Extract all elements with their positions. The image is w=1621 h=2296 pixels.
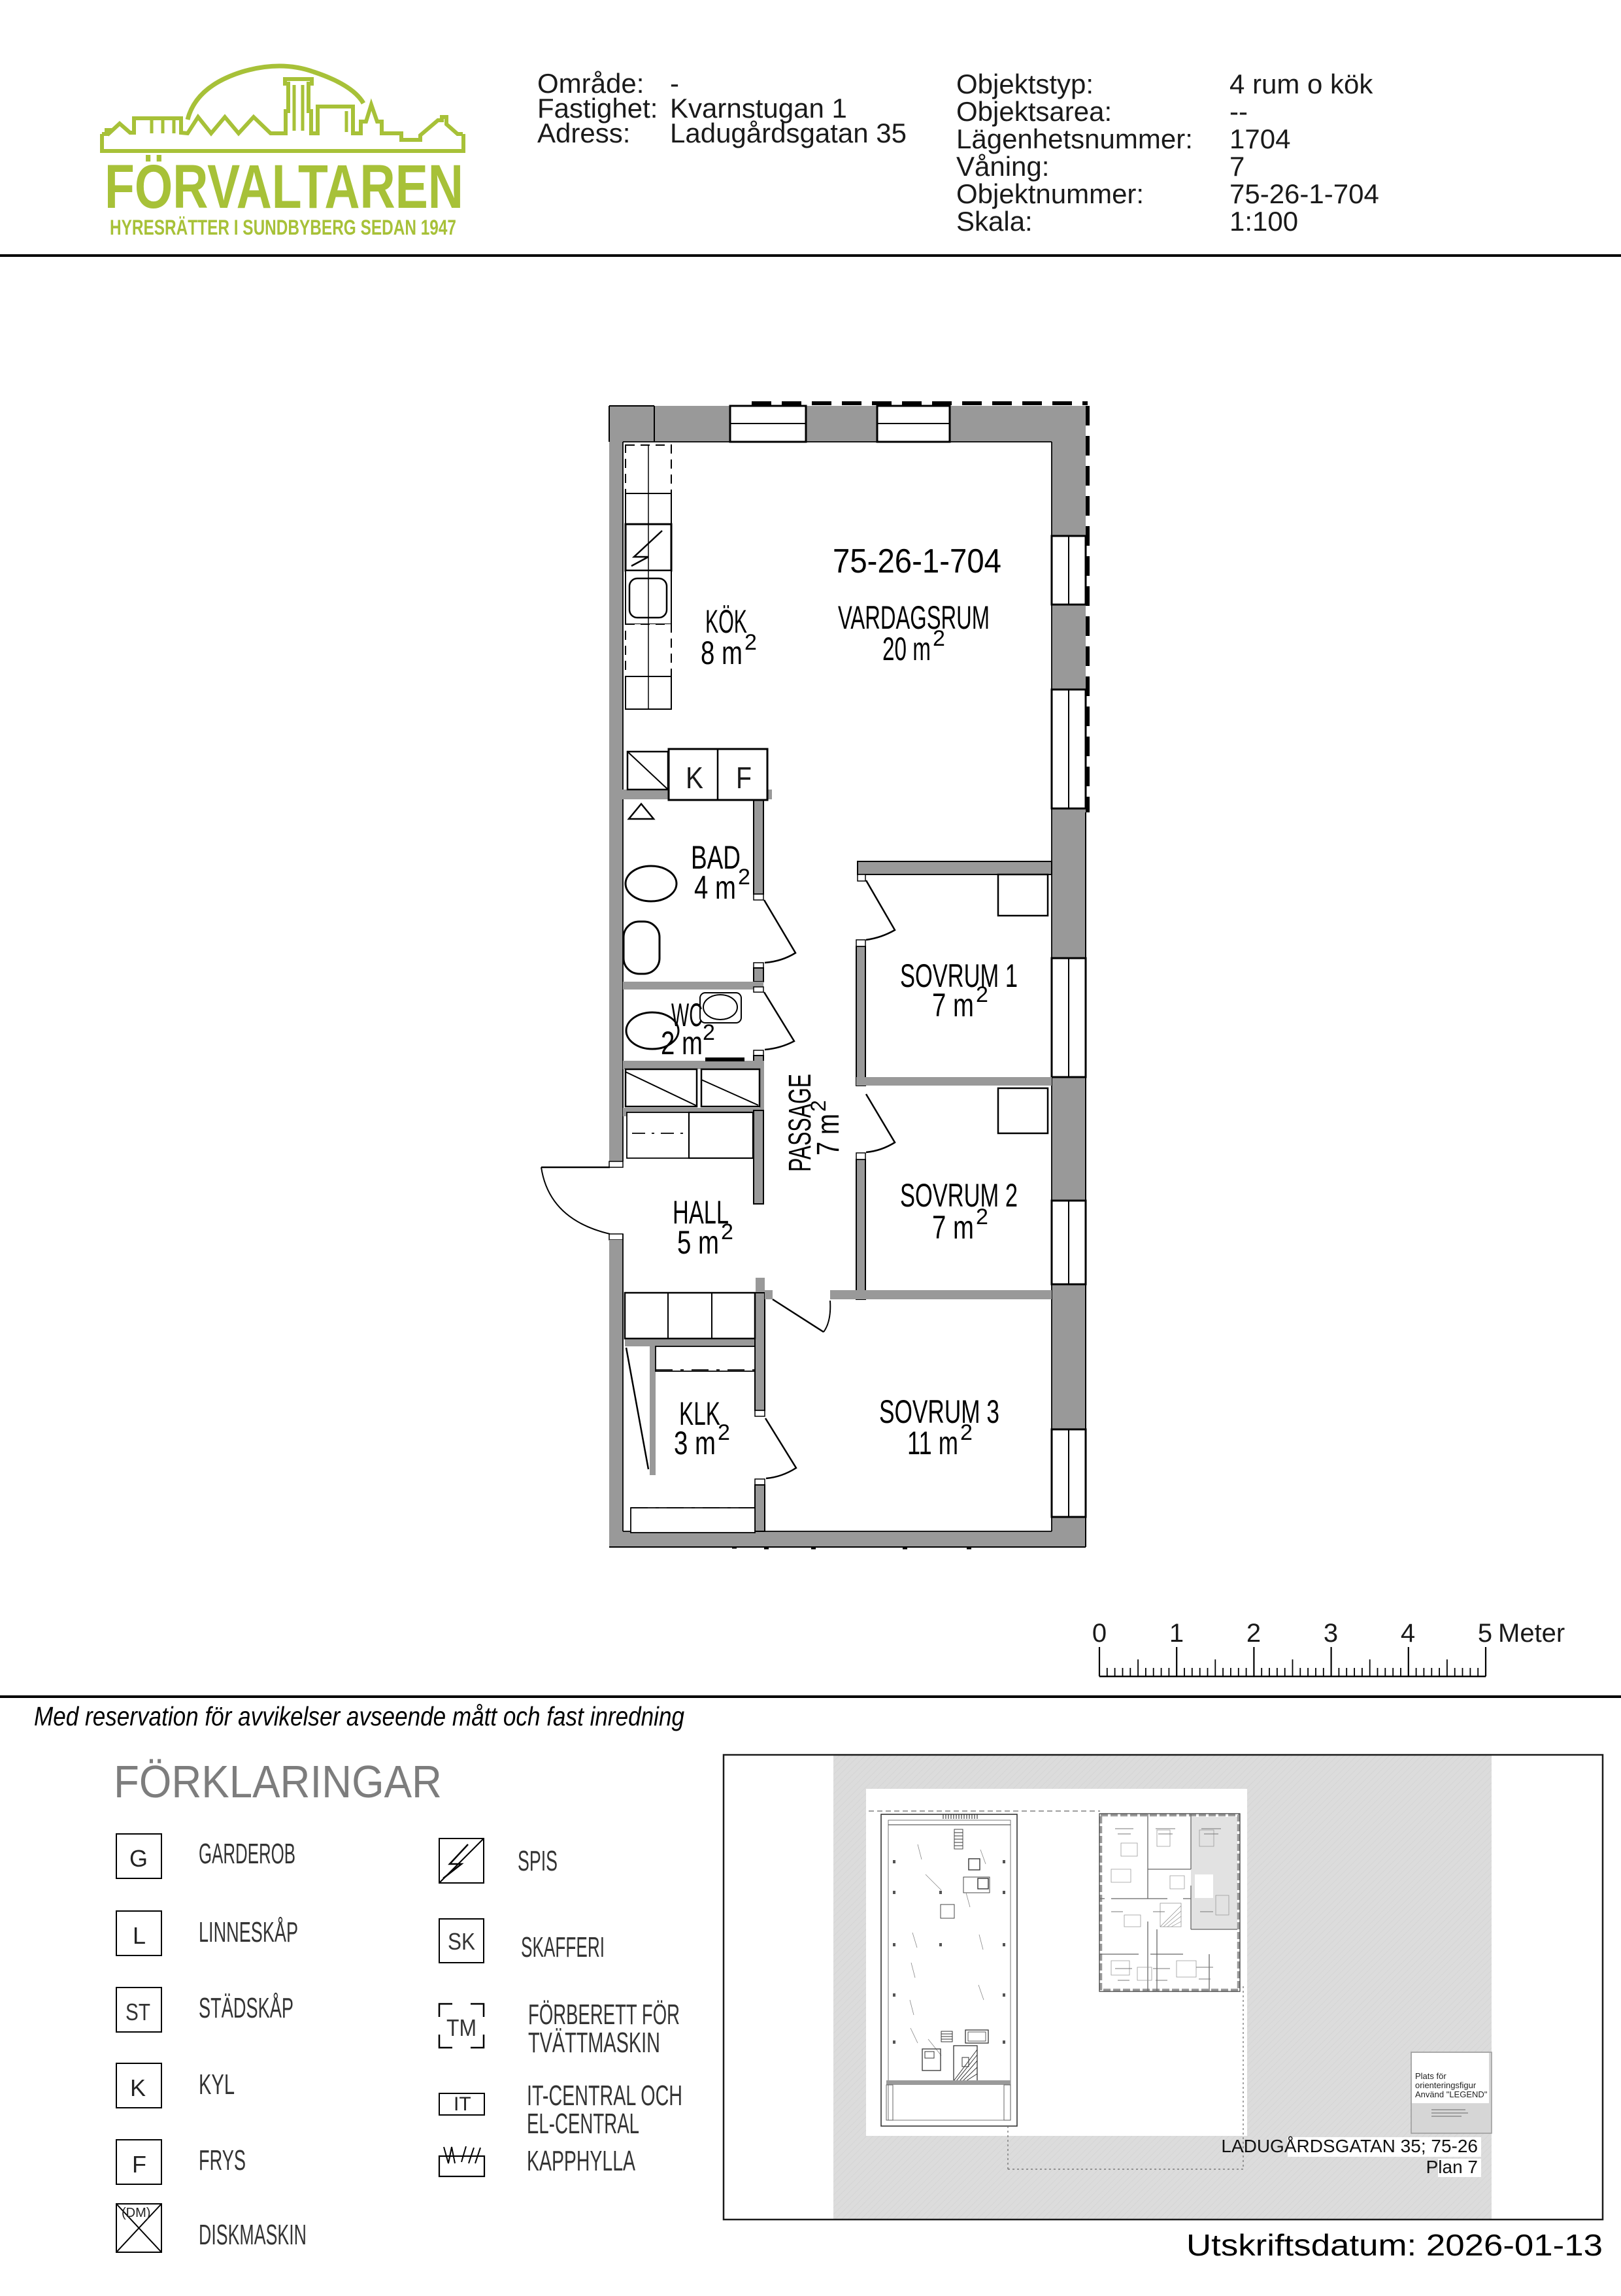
svg-text:1704: 1704 — [1229, 124, 1290, 154]
svg-text:7 m: 7 m — [811, 1114, 846, 1156]
svg-text:SKAFFERI: SKAFFERI — [521, 1931, 605, 1963]
svg-text:EL-CENTRAL: EL-CENTRAL — [527, 2108, 639, 2140]
svg-text:Objektnummer:: Objektnummer: — [956, 178, 1144, 209]
svg-text:TVÄTTMASKIN: TVÄTTMASKIN — [528, 2027, 660, 2059]
svg-text:2: 2 — [721, 1220, 733, 1244]
svg-text:L: L — [133, 1922, 146, 1949]
svg-text:KYL: KYL — [199, 2069, 235, 2101]
svg-text:FRYS: FRYS — [199, 2144, 246, 2176]
svg-text:5: 5 — [1478, 1619, 1492, 1648]
svg-text:K: K — [130, 2074, 146, 2101]
svg-text:75-26-1-704: 75-26-1-704 — [833, 542, 1001, 580]
svg-text:0: 0 — [1092, 1619, 1107, 1648]
svg-text:KAPPHYLLA: KAPPHYLLA — [527, 2145, 635, 2177]
svg-text:2: 2 — [738, 865, 750, 890]
svg-text:(DM): (DM) — [122, 2206, 150, 2220]
svg-text:Utskriftsdatum: 2026-01-13: Utskriftsdatum: 2026-01-13 — [1186, 2228, 1603, 2262]
svg-text:Med reservation för avvikelser: Med reservation för avvikelser avseende … — [34, 1701, 684, 1731]
svg-text:K: K — [686, 761, 703, 795]
svg-text:Skala:: Skala: — [956, 206, 1033, 237]
svg-text:8 m: 8 m — [701, 635, 743, 671]
svg-text:LADUGÅRDSGATAN 35; 75-26: LADUGÅRDSGATAN 35; 75-26 — [1221, 2136, 1478, 2156]
svg-text:2: 2 — [807, 1100, 830, 1112]
svg-text:1:100: 1:100 — [1229, 206, 1298, 237]
svg-text:TM: TM — [446, 2014, 476, 2041]
svg-text:7 m: 7 m — [932, 987, 974, 1023]
svg-text:LINNESKÅP: LINNESKÅP — [199, 1916, 298, 1948]
svg-text:F: F — [132, 2151, 146, 2178]
svg-text:4: 4 — [1401, 1619, 1415, 1648]
svg-text:3: 3 — [1324, 1619, 1338, 1648]
svg-text:Adress:: Adress: — [537, 118, 630, 148]
svg-text:SK: SK — [448, 1928, 475, 1955]
svg-text:Plan 7: Plan 7 — [1426, 2157, 1478, 2177]
svg-text:2: 2 — [976, 1205, 988, 1229]
svg-text:Objektsarea:: Objektsarea: — [956, 96, 1112, 127]
svg-text:HYRESRÄTTER I SUNDBYBERG SEDAN: HYRESRÄTTER I SUNDBYBERG SEDAN 1947 — [110, 216, 456, 239]
svg-text:2: 2 — [960, 1420, 973, 1445]
svg-text:IT-CENTRAL OCH: IT-CENTRAL OCH — [527, 2080, 682, 2112]
svg-text:FÖRKLARINGAR: FÖRKLARINGAR — [114, 1756, 442, 1807]
svg-text:orienteringsfigur: orienteringsfigur — [1415, 2080, 1477, 2090]
svg-text:7: 7 — [1229, 151, 1245, 182]
svg-text:Meter: Meter — [1498, 1619, 1565, 1648]
svg-text:3 m: 3 m — [674, 1425, 716, 1461]
svg-text:2: 2 — [976, 982, 988, 1007]
svg-text:Ladugårdsgatan 35: Ladugårdsgatan 35 — [670, 118, 907, 148]
svg-text:--: -- — [1229, 96, 1248, 127]
svg-text:5 m: 5 m — [677, 1224, 719, 1261]
svg-text:Lägenhetsnummer:: Lägenhetsnummer: — [956, 124, 1193, 154]
svg-text:SPIS: SPIS — [518, 1845, 558, 1877]
svg-text:2 m: 2 m — [661, 1025, 703, 1061]
svg-text:2: 2 — [703, 1020, 715, 1045]
svg-text:2: 2 — [744, 630, 757, 655]
svg-text:Använd "LEGEND": Använd "LEGEND" — [1415, 2089, 1488, 2099]
svg-text:GARDEROB: GARDEROB — [199, 1838, 295, 1870]
svg-text:11 m: 11 m — [907, 1425, 958, 1461]
svg-text:1: 1 — [1169, 1619, 1184, 1648]
svg-text:2: 2 — [1246, 1619, 1261, 1648]
svg-text:ST: ST — [125, 1999, 150, 2025]
svg-text:Objektstyp:: Objektstyp: — [956, 69, 1094, 99]
svg-text:IT: IT — [454, 2093, 471, 2115]
svg-text:2: 2 — [718, 1420, 730, 1445]
svg-text:20 m: 20 m — [882, 631, 931, 667]
svg-text:4 m: 4 m — [694, 869, 736, 906]
svg-text:Våning:: Våning: — [956, 151, 1049, 182]
svg-text:F: F — [736, 761, 752, 795]
svg-text:FÖRVALTAREN: FÖRVALTAREN — [105, 152, 463, 222]
svg-text:Plats för: Plats för — [1415, 2071, 1446, 2081]
svg-text:STÄDSKÅP: STÄDSKÅP — [199, 1992, 293, 2024]
svg-text:DISKMASKIN: DISKMASKIN — [199, 2219, 307, 2251]
svg-text:75-26-1-704: 75-26-1-704 — [1229, 178, 1379, 209]
svg-text:FÖRBERETT FÖR: FÖRBERETT FÖR — [528, 1999, 680, 2031]
svg-text:2: 2 — [933, 626, 945, 651]
svg-text:7 m: 7 m — [932, 1209, 974, 1246]
svg-text:SOVRUM 2: SOVRUM 2 — [900, 1177, 1018, 1214]
svg-text:4 rum o kök: 4 rum o kök — [1229, 69, 1373, 99]
svg-text:G: G — [129, 1845, 148, 1872]
